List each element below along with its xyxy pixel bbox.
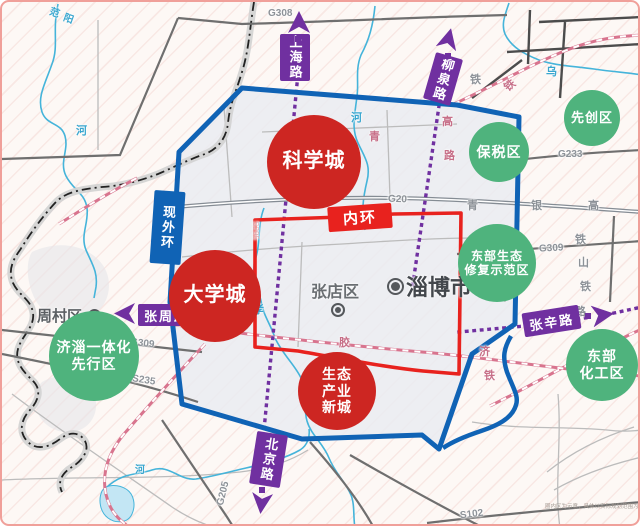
map-disclaimer: 圈内区为示意，具体以实际规划范围为准。 xyxy=(545,502,640,510)
zibo-planning-map: G308G20G233G309G309S235G205S102S295范阳河河河… xyxy=(0,0,640,526)
south-creek xyxy=(106,429,309,488)
map-geometry xyxy=(2,2,640,526)
west-urban-patch-2 xyxy=(35,376,96,432)
g233-road xyxy=(500,150,640,162)
wu-river xyxy=(503,3,640,75)
g308-road xyxy=(178,15,507,24)
